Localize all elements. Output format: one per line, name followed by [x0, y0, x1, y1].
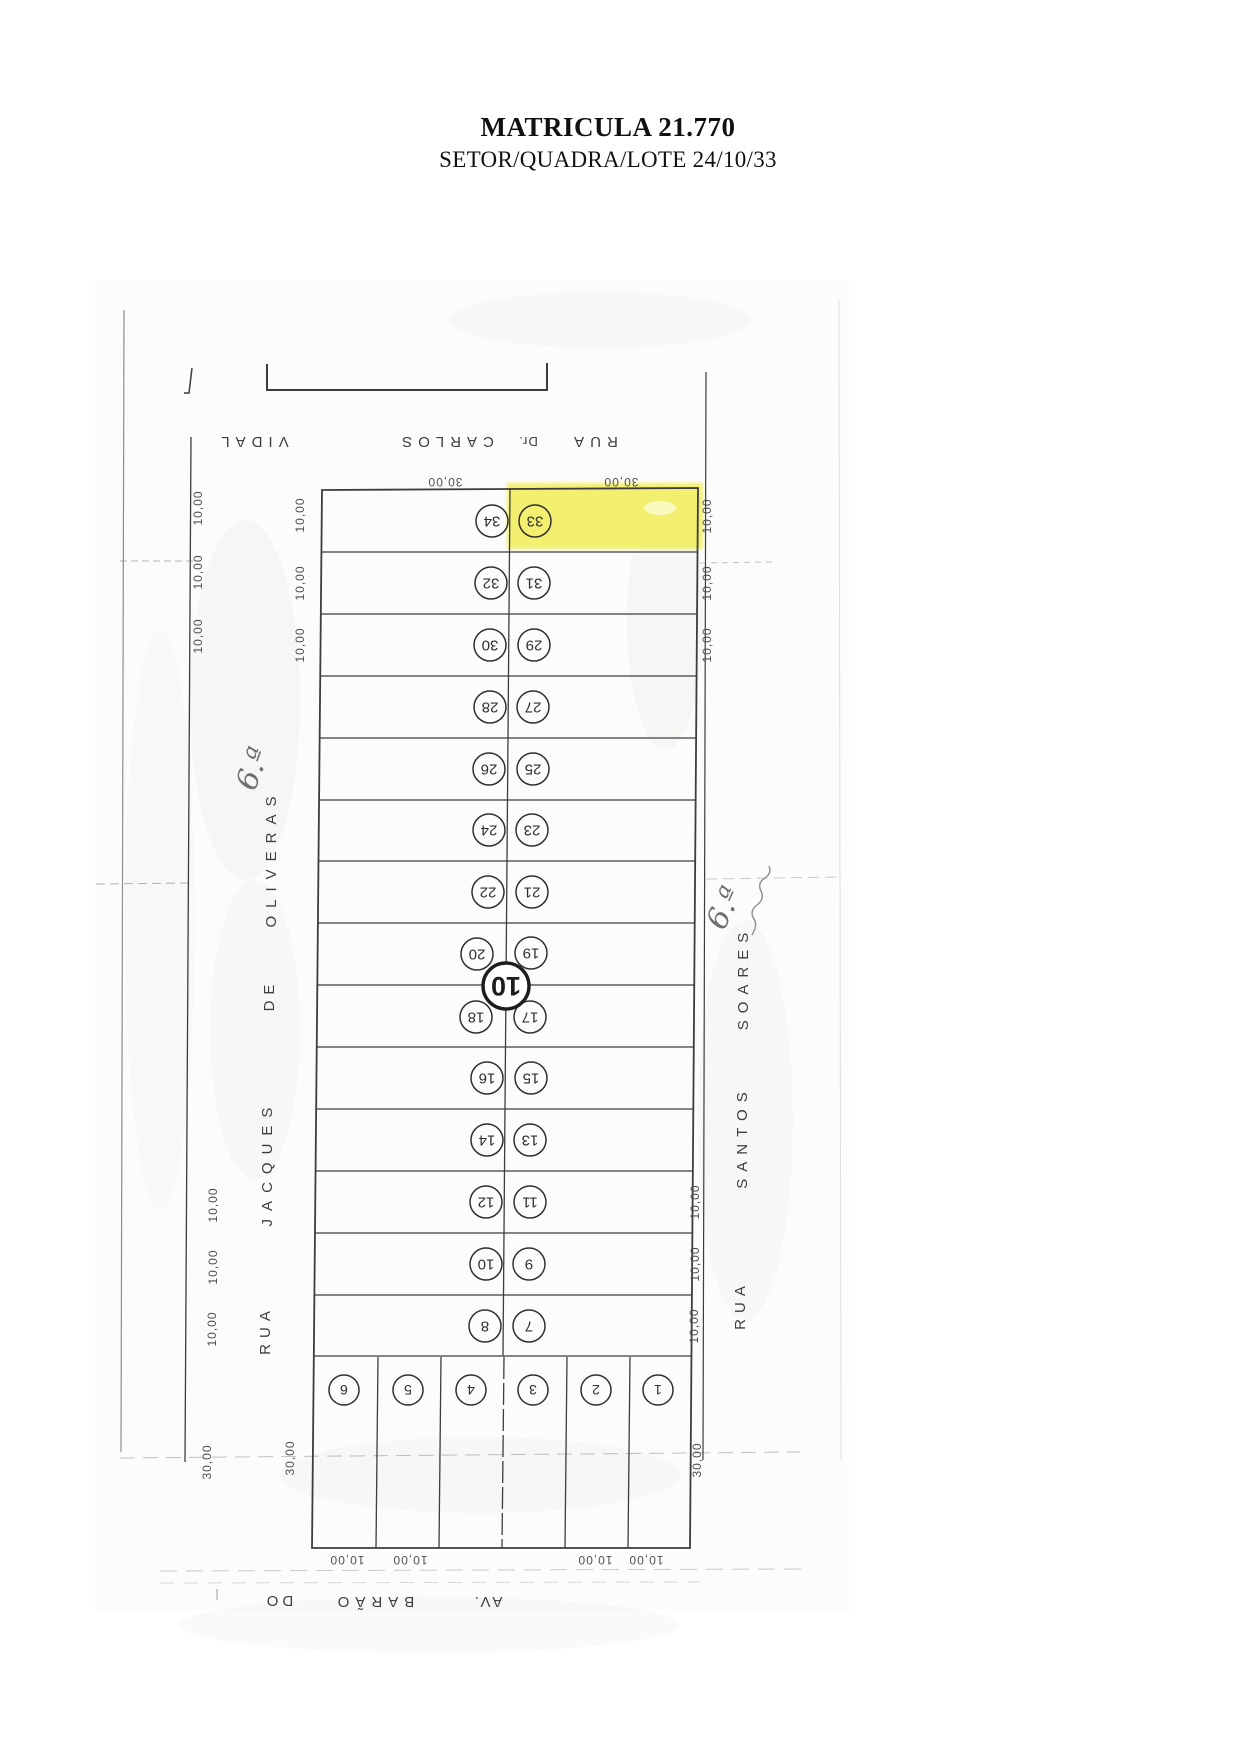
plat-map-drawing: 34 33 32 31 30 29 28 27 26 25 24 23 22 2…: [0, 0, 1241, 1754]
dim-label: 10,00: [206, 1187, 220, 1222]
lot-number: 18: [468, 1009, 485, 1026]
street-top-word: CARLOS: [396, 433, 494, 450]
lot-number-highlighted: 33: [527, 513, 544, 530]
dim-label: 10,00: [688, 1246, 702, 1281]
dim-label: 30,00: [200, 1444, 214, 1479]
dim-label: 10,00: [293, 627, 307, 662]
lot-number: 32: [483, 575, 500, 592]
dim-label: 10,00: [293, 565, 307, 600]
lot-number: 20: [469, 946, 486, 963]
street-bottom-word: DO: [263, 1592, 294, 1609]
street-right-word: SOARES: [735, 926, 752, 1031]
lot-number: 14: [479, 1132, 496, 1149]
dim-label: 10,00: [191, 618, 205, 653]
dim-label: 10,00: [329, 1553, 364, 1567]
dim-label: 10,00: [293, 497, 307, 532]
dim-label: 10,00: [700, 565, 714, 600]
dim-label: 10,00: [628, 1553, 663, 1567]
lot-number: 2: [592, 1382, 600, 1398]
lot-number: 34: [484, 513, 501, 530]
lot-number: 30: [482, 637, 499, 654]
dim-label: 10,00: [700, 627, 714, 662]
dim-label: 10,00: [392, 1553, 427, 1567]
lot-number: 16: [479, 1070, 496, 1087]
street-top-word: Dr.: [518, 434, 538, 449]
dim-label: 30,00: [427, 475, 462, 489]
dim-label: 30,00: [603, 475, 638, 489]
lot-number: 24: [481, 822, 498, 839]
dim-label: 10,00: [191, 554, 205, 589]
highlight-scan-spot: [644, 501, 676, 515]
lot-number: 31: [526, 575, 543, 592]
lot-number: 22: [480, 884, 497, 901]
dim-label: 30,00: [283, 1440, 297, 1475]
lot-number: 15: [523, 1070, 540, 1087]
lot-number: 7: [525, 1318, 533, 1335]
dim-label: 10,00: [688, 1184, 702, 1219]
street-bottom-word: BARÃO: [332, 1593, 415, 1610]
street-left-word: JACQUES: [259, 1100, 276, 1227]
lot-number: 17: [522, 1009, 539, 1026]
street-left-word: OLIVERAS: [263, 788, 280, 927]
dim-label: 10,00: [700, 498, 714, 533]
lot-number: 27: [525, 699, 542, 716]
street-top-word: RUA: [568, 433, 618, 450]
lot-number: 28: [482, 699, 499, 716]
quadra-number: 10: [491, 971, 521, 1001]
lot-number: 25: [525, 761, 542, 778]
dim-label: 30,00: [690, 1442, 704, 1477]
dim-label: 10,00: [206, 1249, 220, 1284]
lot-number: 1: [654, 1382, 662, 1398]
lot-number: 12: [478, 1194, 495, 1211]
lot-number: 19: [523, 945, 540, 962]
street-left-word: RUA: [257, 1305, 274, 1355]
street-top-word: VIDAL: [215, 433, 288, 450]
lot-number: 8: [481, 1318, 489, 1335]
street-bottom-word: AV.: [472, 1593, 503, 1610]
dim-label: 10,00: [191, 490, 205, 525]
lot-number: 23: [524, 822, 541, 839]
lot-number: 26: [481, 761, 498, 778]
dim-label: 10,00: [577, 1553, 612, 1567]
dim-label: 10,00: [205, 1311, 219, 1346]
lot-number: 21: [524, 884, 541, 901]
street-right-word: SANTOS: [734, 1085, 751, 1188]
quadra-marker: 10: [483, 963, 529, 1009]
dim-label: 10,00: [687, 1308, 701, 1343]
lot-number: 3: [529, 1382, 537, 1398]
scanned-document-page: MATRICULA 21.770 SETOR/QUADRA/LOTE 24/10…: [0, 0, 1241, 1754]
street-right-word: RUA: [732, 1280, 749, 1330]
lot-number: 6: [340, 1382, 348, 1398]
lot-number: 5: [404, 1382, 412, 1398]
lot-number: 11: [522, 1194, 538, 1211]
lot-number: 29: [526, 637, 543, 654]
street-left-word: DE: [261, 979, 278, 1012]
lot-number: 9: [525, 1256, 533, 1273]
lot-number: 13: [522, 1132, 539, 1149]
lot-number: 10: [478, 1256, 495, 1273]
lot-number: 4: [467, 1382, 475, 1398]
